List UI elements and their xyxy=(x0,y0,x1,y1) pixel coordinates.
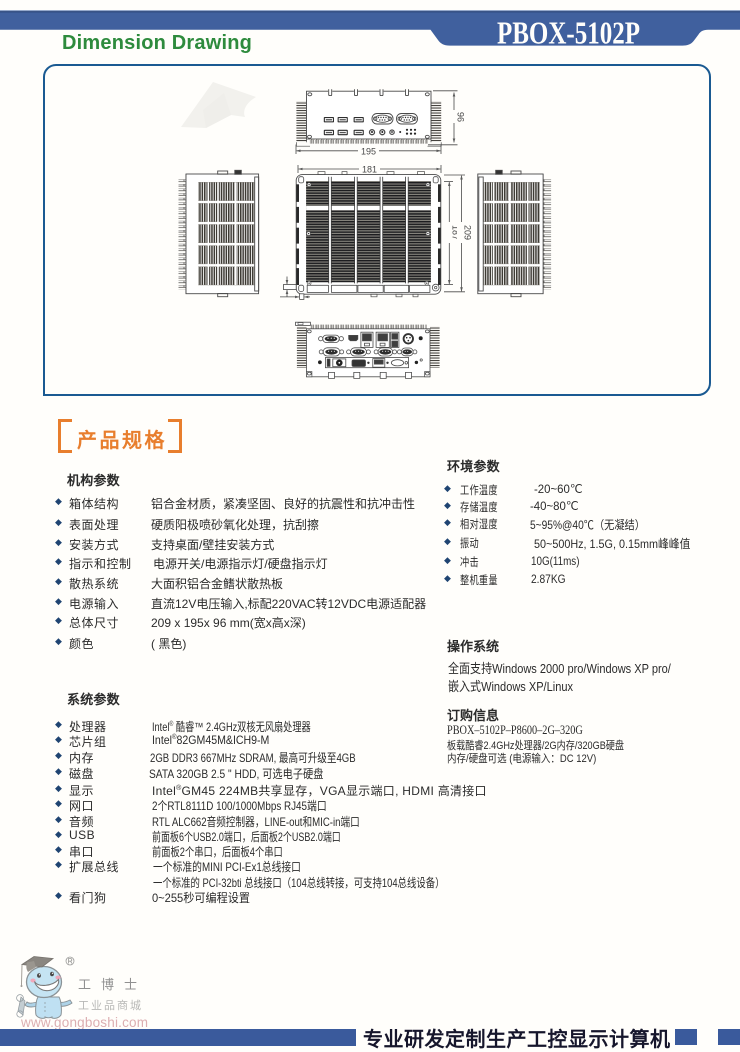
svg-text:181: 181 xyxy=(362,165,377,175)
svg-text:195: 195 xyxy=(361,147,376,157)
svg-text:96: 96 xyxy=(456,112,466,122)
svg-text:209: 209 xyxy=(463,225,473,240)
